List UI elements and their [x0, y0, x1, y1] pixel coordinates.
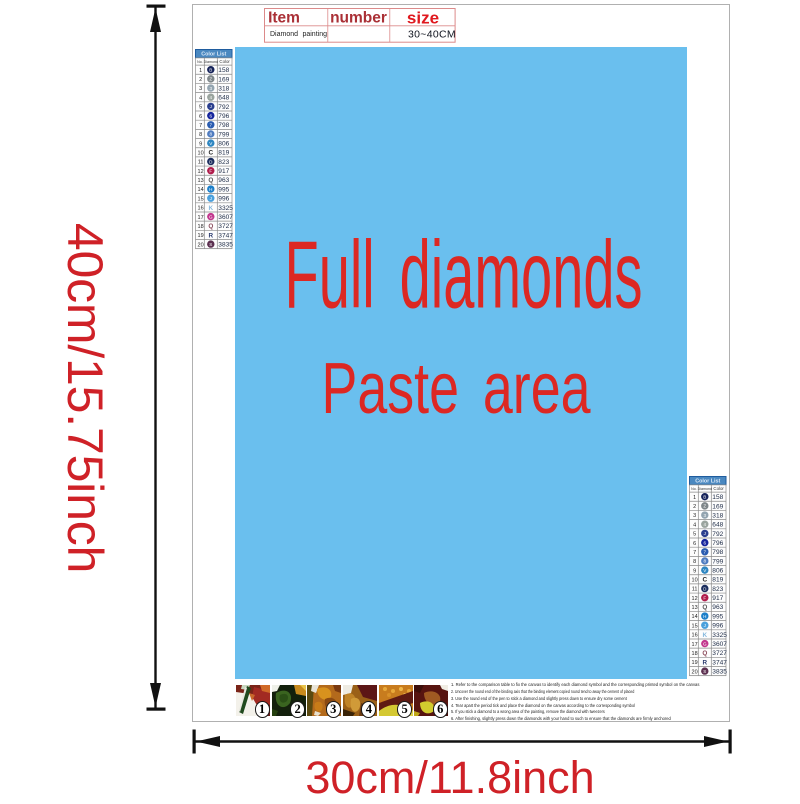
svg-text:6: 6: [210, 113, 213, 118]
svg-text:7: 7: [199, 123, 202, 129]
svg-text:size: size: [407, 9, 439, 28]
svg-text:S: S: [703, 669, 706, 674]
svg-text:R: R: [702, 659, 707, 666]
svg-text:9: 9: [199, 141, 202, 147]
svg-text:798: 798: [218, 122, 229, 129]
svg-text:1: 1: [199, 68, 202, 74]
svg-text:996: 996: [712, 623, 723, 630]
svg-text:995: 995: [218, 186, 229, 193]
svg-text:18: 18: [198, 224, 204, 230]
svg-text:19: 19: [198, 233, 204, 239]
svg-text:K: K: [702, 632, 707, 639]
svg-text:3: 3: [210, 86, 213, 91]
svg-text:S: S: [209, 242, 212, 247]
svg-text:Diamond: Diamond: [698, 487, 712, 491]
svg-text:3747: 3747: [712, 659, 727, 666]
svg-text:B: B: [703, 494, 706, 499]
svg-text:963: 963: [218, 177, 229, 184]
svg-text:Paste area: Paste area: [322, 349, 592, 429]
svg-text:H: H: [703, 614, 706, 619]
svg-text:Z: Z: [703, 504, 706, 509]
svg-text:3325: 3325: [218, 205, 233, 212]
svg-text:819: 819: [218, 150, 229, 157]
svg-text:H: H: [209, 187, 212, 192]
svg-text:158: 158: [218, 67, 229, 74]
svg-text:648: 648: [218, 95, 229, 102]
svg-text:796: 796: [712, 540, 723, 547]
svg-text:4: 4: [693, 522, 696, 528]
svg-text:Color: Color: [219, 59, 230, 64]
svg-text:648: 648: [712, 522, 723, 529]
svg-text:14: 14: [692, 614, 698, 620]
svg-text:9: 9: [693, 568, 696, 574]
svg-text:13: 13: [198, 178, 204, 184]
svg-text:12: 12: [198, 169, 204, 175]
svg-text:917: 917: [218, 168, 229, 175]
svg-text:Q: Q: [208, 223, 213, 230]
svg-text:Item: Item: [268, 10, 300, 27]
svg-text:3835: 3835: [218, 241, 233, 248]
svg-text:823: 823: [712, 586, 723, 593]
svg-text:Color: Color: [713, 486, 724, 491]
svg-text:3727: 3727: [712, 650, 727, 657]
svg-text:14: 14: [198, 187, 204, 193]
svg-text:Diamond painting: Diamond painting: [270, 31, 327, 38]
svg-text:3: 3: [199, 86, 202, 92]
svg-text:J: J: [704, 623, 706, 628]
svg-text:6: 6: [693, 541, 696, 547]
svg-text:995: 995: [712, 613, 723, 620]
svg-text:3835: 3835: [712, 668, 727, 675]
svg-text:F: F: [703, 595, 706, 600]
svg-text:798: 798: [712, 549, 723, 556]
svg-text:806: 806: [712, 568, 723, 575]
svg-text:819: 819: [712, 577, 723, 584]
svg-text:3325: 3325: [712, 632, 727, 639]
svg-text:3747: 3747: [218, 232, 233, 239]
svg-text:17: 17: [198, 215, 204, 221]
svg-text:Color List: Color List: [695, 478, 720, 484]
svg-text:3: 3: [704, 513, 707, 518]
svg-text:No.: No.: [691, 487, 697, 491]
svg-text:J: J: [210, 104, 212, 109]
svg-text:10: 10: [198, 151, 204, 157]
svg-text:796: 796: [218, 113, 229, 120]
svg-text:11: 11: [692, 587, 698, 593]
svg-text:17: 17: [692, 642, 698, 648]
svg-text:Full diamonds: Full diamonds: [285, 222, 643, 329]
svg-text:Q: Q: [208, 177, 213, 184]
svg-text:G: G: [703, 641, 707, 646]
svg-text:6: 6: [199, 114, 202, 120]
svg-text:J: J: [210, 196, 212, 201]
svg-text:7: 7: [704, 550, 707, 555]
svg-text:G: G: [209, 214, 213, 219]
svg-text:C: C: [208, 150, 213, 157]
svg-text:6: 6: [704, 540, 707, 545]
svg-text:8: 8: [210, 132, 213, 137]
svg-text:J: J: [704, 531, 706, 536]
svg-text:5: 5: [199, 105, 202, 111]
svg-text:792: 792: [218, 104, 229, 111]
svg-text:C: C: [702, 577, 707, 584]
svg-text:15: 15: [692, 623, 698, 629]
svg-text:3607: 3607: [218, 214, 233, 221]
svg-text:15: 15: [198, 196, 204, 202]
svg-text:4: 4: [199, 95, 202, 101]
svg-text:18: 18: [692, 651, 698, 657]
svg-text:Color List: Color List: [201, 51, 226, 57]
svg-text:Q: Q: [702, 650, 707, 657]
svg-text:823: 823: [218, 159, 229, 166]
svg-text:8: 8: [199, 132, 202, 138]
svg-text:799: 799: [218, 131, 229, 138]
svg-text:Q: Q: [702, 604, 707, 611]
svg-text:158: 158: [712, 494, 723, 501]
svg-text:No.: No.: [197, 60, 203, 64]
svg-text:4: 4: [704, 522, 707, 527]
svg-text:11: 11: [198, 160, 204, 166]
svg-text:7: 7: [210, 123, 213, 128]
svg-text:19: 19: [692, 660, 698, 666]
svg-text:3727: 3727: [218, 223, 233, 230]
svg-text:996: 996: [218, 196, 229, 203]
svg-text:2: 2: [199, 77, 202, 83]
svg-text:K: K: [208, 205, 213, 212]
svg-text:R: R: [208, 232, 213, 239]
svg-text:16: 16: [198, 206, 204, 212]
svg-text:318: 318: [712, 512, 723, 519]
svg-text:3607: 3607: [712, 641, 727, 648]
svg-text:799: 799: [712, 558, 723, 565]
svg-text:20: 20: [692, 669, 698, 675]
svg-text:B: B: [209, 67, 212, 72]
svg-text:30~40CM: 30~40CM: [408, 29, 456, 41]
svg-text:13: 13: [692, 605, 698, 611]
svg-text:169: 169: [712, 503, 723, 510]
svg-text:2: 2: [693, 504, 696, 510]
svg-text:792: 792: [712, 531, 723, 538]
svg-text:12: 12: [692, 596, 698, 602]
svg-text:16: 16: [692, 633, 698, 639]
svg-text:963: 963: [712, 604, 723, 611]
svg-text:7: 7: [693, 550, 696, 556]
svg-text:Z: Z: [209, 77, 212, 82]
svg-text:169: 169: [218, 76, 229, 83]
svg-text:917: 917: [712, 595, 723, 602]
svg-text:20: 20: [198, 242, 204, 248]
svg-text:4: 4: [210, 95, 213, 100]
svg-text:Diamond: Diamond: [204, 60, 218, 64]
svg-text:number: number: [330, 10, 387, 27]
svg-text:806: 806: [218, 141, 229, 148]
svg-text:3: 3: [693, 513, 696, 519]
svg-text:F: F: [209, 168, 212, 173]
svg-text:1: 1: [693, 495, 696, 501]
svg-text:10: 10: [692, 578, 698, 584]
svg-text:8: 8: [693, 559, 696, 565]
svg-text:8: 8: [704, 559, 707, 564]
svg-text:318: 318: [218, 85, 229, 92]
svg-text:5: 5: [693, 532, 696, 538]
